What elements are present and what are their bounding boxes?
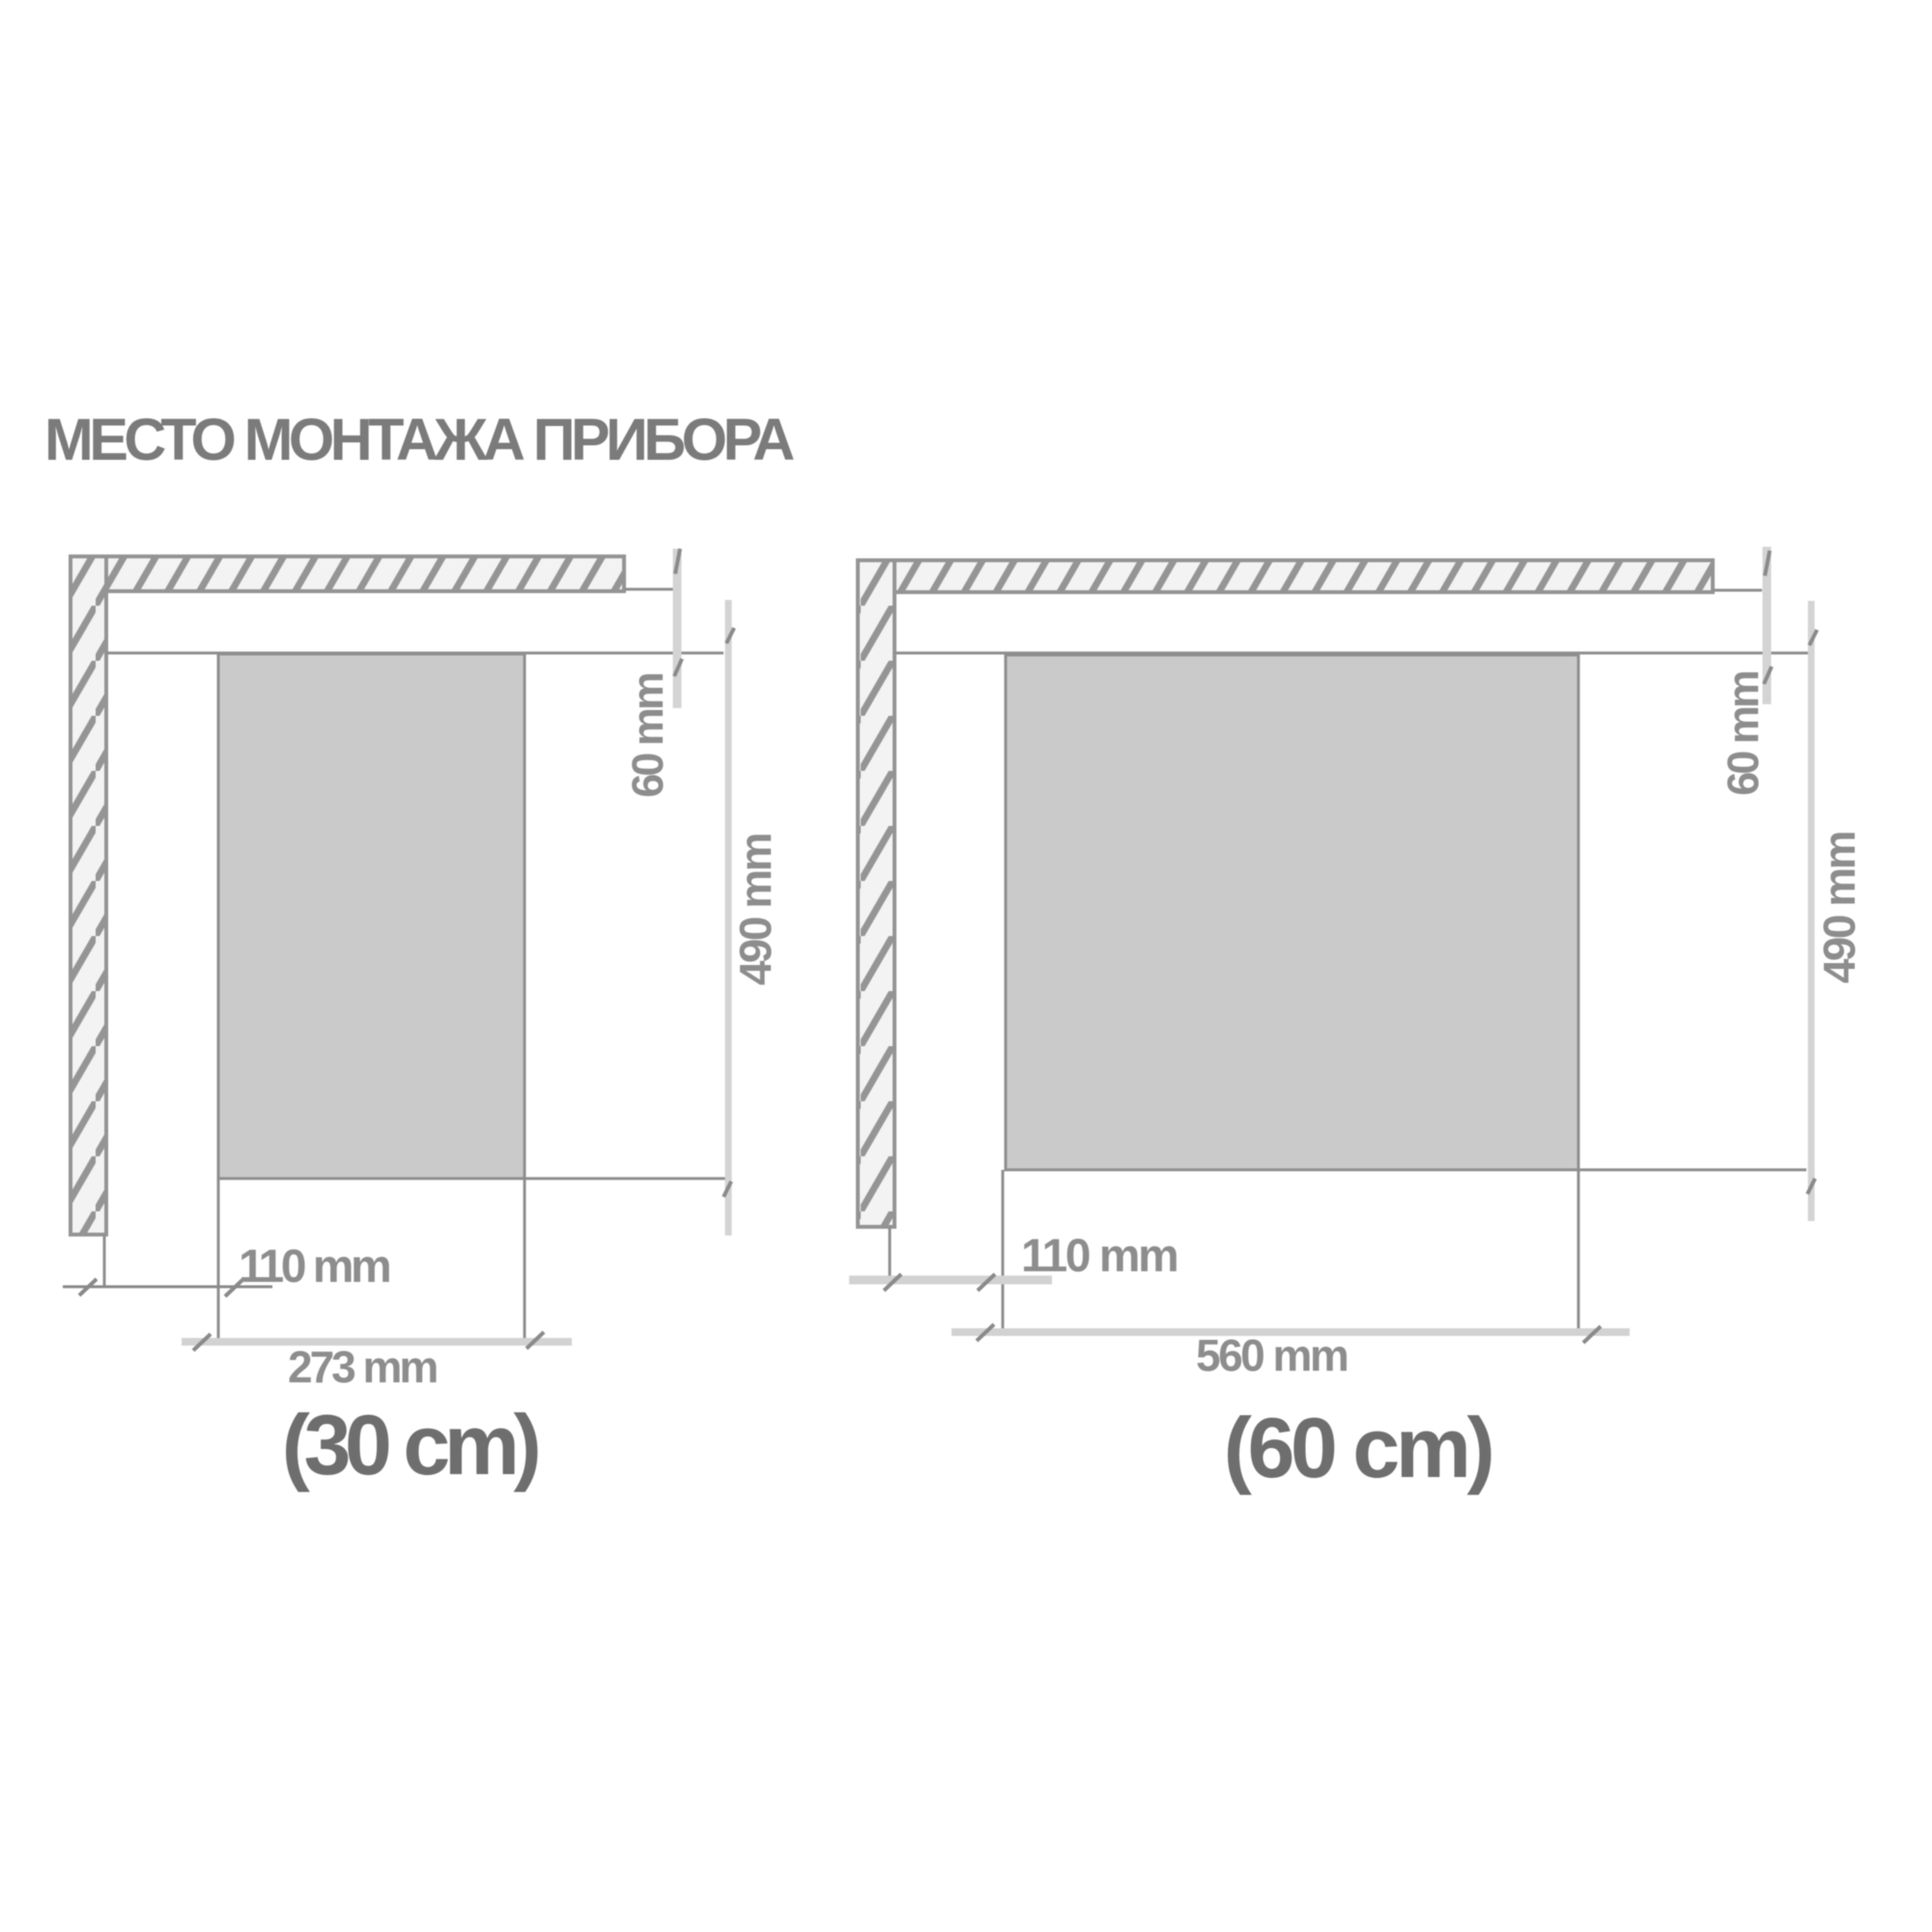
svg-text:560 mm: 560 mm xyxy=(1196,1330,1348,1380)
svg-text:490 mm: 490 mm xyxy=(1814,832,1864,983)
svg-text:60 mm: 60 mm xyxy=(1719,671,1768,796)
svg-text:110 mm: 110 mm xyxy=(1021,1231,1177,1282)
svg-text:273 mm: 273 mm xyxy=(288,1342,437,1392)
svg-text:(30 cm): (30 cm) xyxy=(282,1397,538,1492)
svg-text:490 mm: 490 mm xyxy=(730,834,781,985)
svg-text:(60 cm): (60 cm) xyxy=(1224,1400,1492,1495)
svg-text:МЕСТО МОНТАЖА ПРИБОРА: МЕСТО МОНТАЖА ПРИБОРА xyxy=(44,407,794,472)
svg-text:60 mm: 60 mm xyxy=(623,673,672,798)
svg-text:110 mm: 110 mm xyxy=(239,1241,389,1293)
